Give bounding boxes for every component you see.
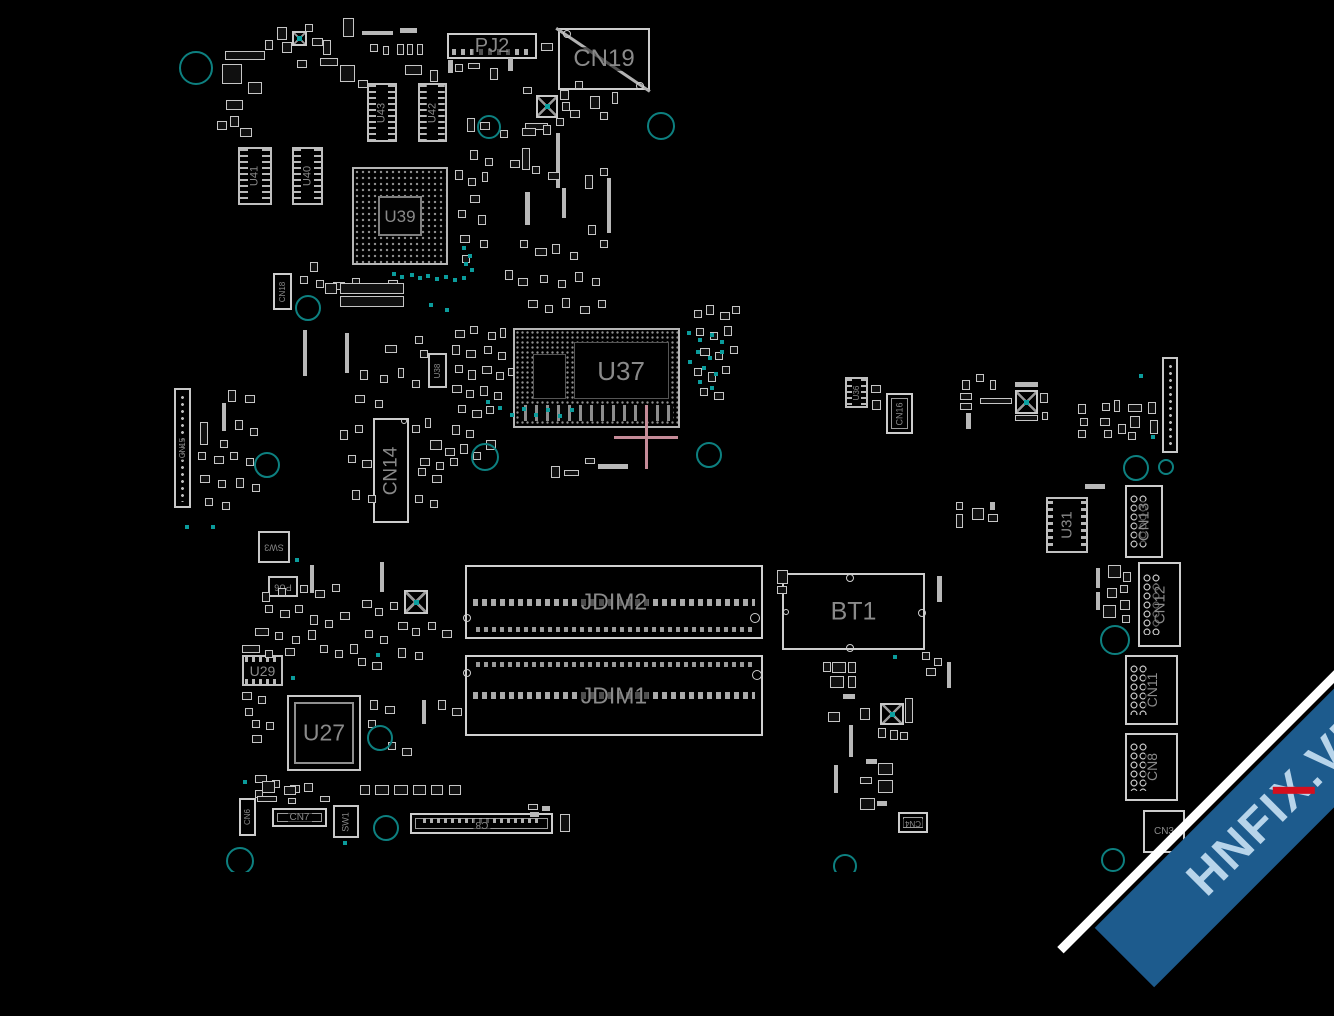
passive-component — [348, 455, 356, 463]
ic-chip — [404, 590, 428, 614]
passive-component — [375, 400, 383, 408]
passive-component — [1123, 572, 1131, 582]
passive-component — [1042, 412, 1048, 420]
pin1-marker — [918, 609, 926, 617]
passive-component — [360, 785, 370, 795]
component-label: CN15 — [179, 436, 187, 460]
passive-component — [455, 170, 463, 180]
passive-component — [236, 478, 244, 488]
passive-component — [520, 240, 528, 248]
passive-component — [230, 452, 238, 460]
passive-component — [222, 64, 242, 84]
component-cn12: CN12 — [1138, 562, 1181, 647]
passive-component — [340, 430, 348, 440]
passive-component — [445, 448, 455, 456]
passive-component — [496, 372, 504, 380]
component-pj2: PJ2 — [447, 33, 537, 59]
passive-component — [415, 336, 423, 344]
trace-bar — [530, 812, 539, 817]
passive-component — [518, 278, 528, 286]
passive-component — [420, 458, 430, 466]
passive-component — [262, 781, 275, 793]
passive-component — [700, 348, 710, 356]
passive-component — [285, 648, 295, 656]
component-label: JDIM1 — [579, 684, 649, 707]
component-label: PJ2 — [473, 36, 511, 56]
mounting-hole — [1100, 625, 1130, 655]
passive-component — [720, 312, 730, 320]
component-label: U42 — [427, 100, 438, 124]
component-label: U29 — [248, 664, 278, 678]
component-label: U40 — [302, 164, 313, 188]
passive-component — [452, 425, 460, 435]
trace-bar — [508, 58, 513, 71]
passive-component — [980, 398, 1012, 404]
pin1-marker — [463, 614, 471, 622]
passive-component — [200, 422, 208, 445]
pin1-marker — [401, 418, 407, 424]
via-dot — [698, 338, 702, 342]
passive-component — [1128, 432, 1136, 440]
trace-bar — [966, 413, 971, 429]
passive-component — [900, 732, 908, 740]
component-label: U38 — [434, 361, 442, 380]
passive-component — [1078, 404, 1086, 414]
passive-component — [1080, 418, 1088, 426]
via-dot — [708, 356, 712, 360]
passive-component — [541, 43, 553, 51]
passive-component — [300, 585, 308, 593]
passive-component — [432, 475, 442, 483]
component-label: U31 — [1060, 509, 1075, 541]
passive-component — [226, 100, 243, 110]
passive-component — [415, 495, 423, 503]
mounting-hole — [226, 847, 254, 872]
passive-component — [508, 368, 514, 376]
passive-component — [420, 350, 428, 358]
passive-component — [412, 380, 420, 388]
passive-component — [372, 662, 382, 670]
component-label: SW1 — [342, 810, 351, 834]
component-label: CN13 — [1137, 500, 1152, 542]
via-dot — [468, 254, 472, 258]
component-bt1: BT1 — [782, 573, 925, 650]
trace-bar — [1015, 382, 1038, 387]
pin1-marker — [752, 670, 762, 680]
passive-component — [570, 110, 580, 118]
passive-component — [368, 495, 376, 503]
component-jdim2: JDIM2 — [465, 565, 763, 639]
pin1-marker — [636, 82, 644, 90]
passive-component — [370, 700, 378, 710]
passive-component — [960, 393, 972, 400]
passive-component — [343, 18, 354, 37]
component-cn19: CN19 — [558, 28, 650, 90]
passive-component — [830, 676, 844, 688]
passive-component — [777, 570, 788, 584]
component-cn8: CN8 — [1125, 733, 1178, 801]
via-dot — [295, 558, 299, 562]
passive-component — [1114, 400, 1120, 412]
passive-component — [452, 385, 462, 393]
passive-component — [250, 428, 258, 436]
passive-component — [562, 102, 570, 111]
passive-component — [320, 645, 328, 653]
passive-component — [458, 210, 466, 218]
passive-component — [848, 662, 856, 673]
trace-bar — [562, 188, 566, 218]
passive-component — [468, 370, 476, 380]
passive-component — [449, 785, 461, 795]
passive-component — [532, 166, 540, 174]
passive-component — [358, 80, 368, 88]
via-dot — [426, 274, 430, 278]
component-cn13: CN13 — [1125, 485, 1163, 558]
passive-component — [860, 798, 875, 810]
passive-component — [500, 328, 506, 338]
passive-component — [340, 296, 404, 307]
via-dot — [534, 413, 538, 417]
passive-component — [1104, 430, 1112, 438]
trace-bar — [607, 178, 611, 233]
trace-bar — [990, 502, 995, 510]
passive-component — [242, 692, 252, 700]
component-u31: U31 — [1046, 497, 1088, 553]
passive-component — [484, 346, 492, 354]
trace-bar — [834, 765, 838, 793]
via-dot — [714, 372, 718, 376]
ic-chip — [536, 95, 558, 118]
mounting-hole — [254, 452, 280, 478]
passive-component — [220, 440, 228, 448]
via-dot — [470, 268, 474, 272]
passive-component — [362, 460, 372, 468]
via-dot — [410, 273, 414, 277]
passive-component — [1148, 402, 1156, 414]
passive-component — [600, 168, 608, 176]
passive-component — [405, 65, 422, 75]
passive-component — [340, 65, 355, 82]
passive-component — [543, 125, 551, 135]
passive-component — [310, 262, 318, 272]
component-u27: U27 — [287, 695, 361, 771]
passive-component — [878, 728, 886, 738]
passive-component — [988, 514, 998, 522]
passive-component — [872, 400, 881, 410]
via-dot — [435, 277, 439, 281]
passive-component — [592, 278, 600, 286]
component-u39: U39 — [352, 167, 448, 265]
component-label: C8 — [473, 819, 490, 829]
passive-component — [455, 330, 465, 338]
passive-component — [248, 82, 262, 94]
via-dot — [698, 380, 702, 384]
passive-component — [926, 668, 936, 676]
passive-component — [558, 280, 566, 288]
passive-component — [350, 644, 358, 654]
passive-component — [580, 306, 590, 314]
via-dot — [893, 655, 897, 659]
via-dot — [418, 276, 422, 280]
component-jdim1: JDIM1 — [465, 655, 763, 736]
component-label: U43 — [377, 100, 388, 124]
trace-bar — [598, 464, 628, 469]
component-label: CN8 — [1145, 751, 1159, 783]
passive-component — [972, 508, 984, 520]
passive-component — [505, 270, 513, 280]
passive-component — [235, 420, 243, 430]
passive-component — [976, 374, 984, 382]
passive-component — [1078, 430, 1086, 438]
ic-chip — [292, 31, 307, 46]
component-cn16: CN16 — [886, 393, 913, 434]
passive-component — [510, 160, 520, 168]
passive-component — [860, 777, 872, 784]
passive-component — [308, 630, 316, 640]
component-label: SW3 — [262, 543, 286, 552]
passive-component — [412, 425, 420, 433]
passive-component — [320, 58, 338, 66]
passive-component — [1107, 588, 1117, 598]
passive-component — [490, 68, 498, 80]
component-u42: U42 — [418, 83, 447, 142]
component-label: U41 — [250, 164, 261, 188]
passive-component — [413, 785, 426, 795]
via-dot — [392, 272, 396, 276]
via-dot — [720, 340, 724, 344]
passive-component — [922, 652, 930, 660]
via-dot — [570, 408, 574, 412]
passive-component — [390, 602, 398, 610]
passive-component — [222, 502, 230, 510]
passive-component — [240, 128, 252, 137]
connector — [1162, 357, 1178, 453]
passive-component — [934, 658, 942, 666]
passive-component — [730, 346, 738, 354]
passive-component — [488, 332, 496, 340]
pin1-marker — [846, 574, 854, 582]
passive-component — [292, 636, 300, 644]
component-label: BT1 — [829, 599, 879, 624]
passive-component — [315, 590, 325, 598]
via-dot — [376, 653, 380, 657]
passive-component — [590, 96, 600, 109]
via-dot — [243, 780, 247, 784]
passive-component — [482, 172, 488, 182]
passive-component — [714, 392, 724, 400]
passive-component — [257, 796, 277, 802]
passive-component — [398, 648, 406, 658]
component-label: CN18 — [279, 279, 287, 303]
passive-component — [385, 345, 397, 353]
component-label: U39 — [382, 208, 417, 225]
component-label: U27 — [301, 722, 347, 745]
passive-component — [468, 63, 480, 69]
passive-component — [316, 280, 324, 288]
passive-component — [300, 276, 308, 284]
passive-component — [383, 46, 389, 55]
passive-component — [722, 366, 730, 374]
mounting-hole — [179, 51, 213, 85]
passive-component — [418, 468, 426, 476]
passive-component — [522, 148, 530, 170]
passive-component — [777, 586, 787, 594]
passive-component — [430, 440, 442, 450]
passive-component — [295, 605, 303, 613]
passive-component — [878, 763, 893, 775]
passive-component — [225, 51, 265, 60]
passive-component — [262, 592, 270, 602]
via-dot — [688, 360, 692, 364]
passive-component — [878, 780, 893, 793]
component-u43: U43 — [367, 83, 397, 142]
mounting-hole — [696, 442, 722, 468]
passive-component — [1150, 420, 1158, 434]
component-label: CN12 — [1152, 583, 1167, 625]
trace-bar — [380, 562, 384, 592]
passive-component — [1015, 415, 1038, 421]
passive-component — [380, 375, 388, 383]
component-label: U36 — [853, 383, 861, 402]
passive-component — [218, 480, 226, 488]
passive-component — [956, 502, 963, 510]
passive-component — [560, 90, 569, 100]
passive-component — [258, 696, 266, 704]
component-label: CN16 — [895, 400, 904, 427]
passive-component — [266, 722, 274, 730]
passive-component — [470, 326, 478, 334]
mounting-hole — [295, 295, 321, 321]
passive-component — [265, 40, 273, 50]
passive-component — [612, 92, 618, 104]
passive-component — [1102, 403, 1110, 411]
passive-component — [478, 215, 486, 225]
trace-bar — [542, 806, 550, 811]
passive-component — [551, 466, 560, 478]
passive-component — [394, 785, 408, 795]
passive-component — [962, 380, 970, 390]
passive-component — [498, 352, 506, 360]
trace-bar — [448, 60, 453, 73]
component-label: CN7 — [287, 813, 311, 823]
via-dot — [291, 676, 295, 680]
component-u41: U41 — [238, 147, 272, 205]
passive-component — [585, 175, 593, 189]
passive-component — [277, 27, 287, 40]
component-label: CN4 — [903, 819, 923, 827]
passive-component — [455, 365, 463, 373]
component-label: CN6 — [244, 807, 252, 827]
passive-component — [265, 605, 273, 613]
mounting-hole — [1123, 455, 1149, 481]
passive-component — [556, 118, 564, 126]
passive-component — [360, 370, 368, 380]
via-dot — [522, 407, 526, 411]
passive-component — [575, 81, 583, 89]
via-dot — [546, 408, 550, 412]
passive-component — [528, 300, 538, 308]
passive-component — [528, 804, 538, 810]
passive-component — [694, 310, 702, 318]
passive-component — [297, 60, 307, 68]
passive-component — [600, 112, 608, 120]
via-dot — [464, 262, 468, 266]
component-u38: U38 — [428, 353, 447, 388]
passive-component — [412, 628, 420, 636]
passive-component — [245, 708, 253, 716]
passive-component — [217, 121, 227, 130]
via-dot — [444, 275, 448, 279]
mounting-hole — [1158, 459, 1174, 475]
via-dot — [702, 366, 706, 370]
passive-component — [252, 484, 260, 492]
passive-component — [452, 345, 460, 355]
trace-bar — [877, 801, 887, 806]
trace-bar — [303, 330, 307, 376]
passive-component — [860, 708, 870, 720]
crosshair-marker — [645, 405, 648, 469]
passive-component — [1108, 565, 1121, 578]
passive-component — [1040, 393, 1048, 403]
mounting-hole — [833, 854, 857, 872]
passive-component — [466, 350, 476, 358]
passive-component — [398, 368, 404, 378]
passive-component — [500, 130, 508, 138]
passive-component — [370, 44, 378, 52]
via-dot — [720, 350, 724, 354]
passive-component — [480, 240, 488, 248]
passive-component — [562, 298, 570, 308]
pin1-marker — [750, 613, 760, 623]
passive-component — [480, 386, 488, 396]
component-label: CN11 — [1145, 671, 1159, 710]
component-cn14: CN14 — [373, 418, 409, 523]
passive-component — [1128, 404, 1142, 412]
component-u36: U36 — [845, 377, 868, 408]
passive-component — [431, 785, 443, 795]
passive-component — [466, 430, 474, 438]
passive-component — [482, 366, 492, 374]
passive-component — [282, 42, 292, 53]
passive-component — [355, 425, 363, 433]
passive-component — [460, 444, 468, 454]
passive-component — [407, 44, 413, 55]
via-dot — [462, 246, 466, 250]
passive-component — [832, 662, 846, 673]
passive-component — [214, 456, 224, 464]
passive-component — [228, 390, 236, 402]
trace-bar — [310, 565, 314, 593]
pin1-marker — [563, 30, 571, 38]
component-label: CN19 — [571, 47, 636, 71]
mounting-hole — [477, 115, 501, 139]
passive-component — [380, 636, 388, 644]
mounting-hole — [373, 815, 399, 841]
via-dot — [486, 400, 490, 404]
component-label: CN14 — [382, 444, 401, 497]
component-cn4: CN4 — [898, 812, 928, 833]
pin-row — [520, 405, 673, 421]
trace-bar — [345, 333, 349, 373]
component-u40: U40 — [292, 147, 323, 205]
trace-bar — [1085, 484, 1105, 489]
passive-component — [417, 44, 423, 55]
passive-component — [415, 652, 423, 660]
passive-component — [355, 395, 365, 403]
passive-component — [522, 128, 536, 136]
passive-component — [472, 410, 482, 418]
passive-component — [325, 620, 333, 628]
